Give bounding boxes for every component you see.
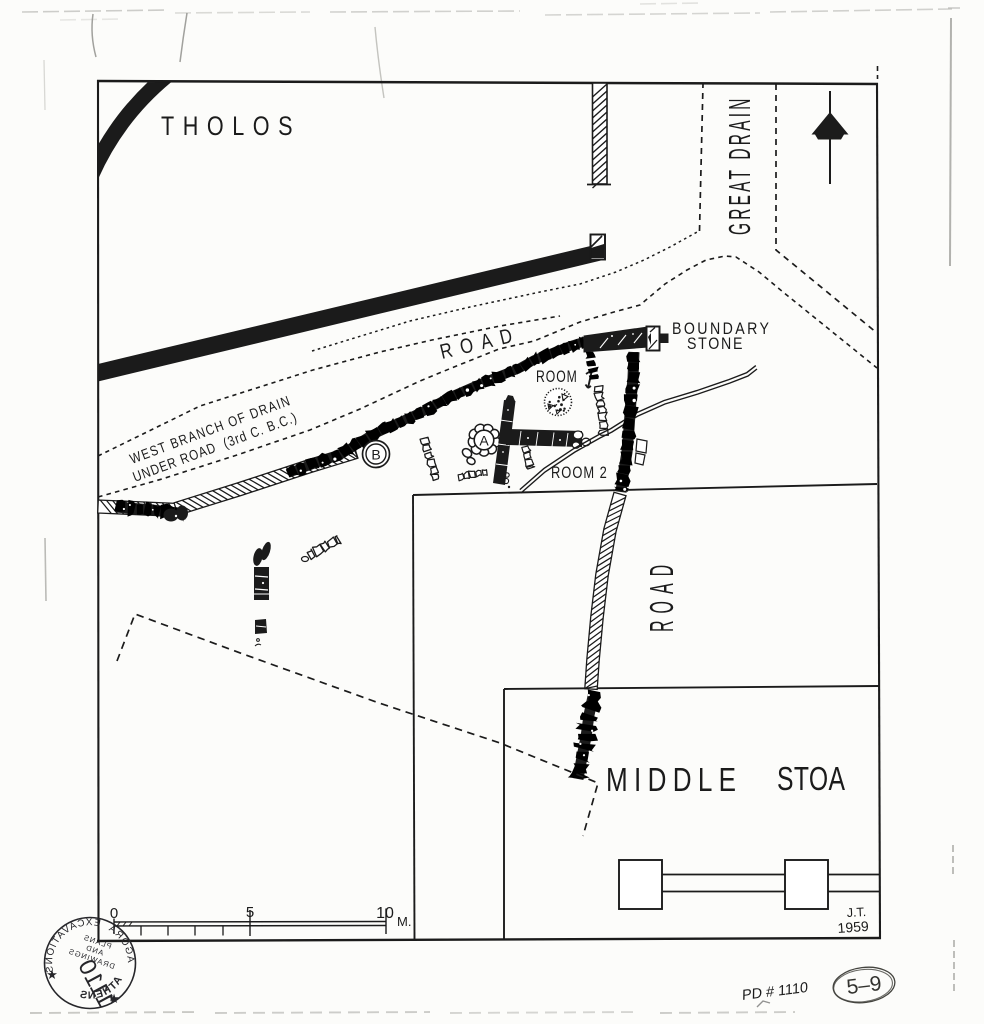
svg-text:STONE: STONE [687,335,744,353]
svg-text:STOA: STOA [777,762,846,798]
svg-text:5–9: 5–9 [845,972,883,999]
svg-text:A: A [479,433,489,449]
svg-text:M.: M. [397,914,411,929]
svg-text:10: 10 [376,905,394,922]
svg-text:1959: 1959 [837,918,869,936]
svg-text:ROOM 2: ROOM 2 [551,463,608,482]
svg-text:MIDDLE: MIDDLE [606,762,742,799]
svg-text:ROOM: ROOM [536,368,578,386]
svg-text:★: ★ [46,967,58,982]
svg-text:ROAD: ROAD [642,558,680,632]
svg-text:B: B [371,447,380,463]
svg-text:GREAT DRAIN: GREAT DRAIN [724,95,758,235]
svg-text:5: 5 [246,904,254,921]
svg-text:THOLOS: THOLOS [161,112,301,142]
svg-text:0: 0 [110,905,118,922]
